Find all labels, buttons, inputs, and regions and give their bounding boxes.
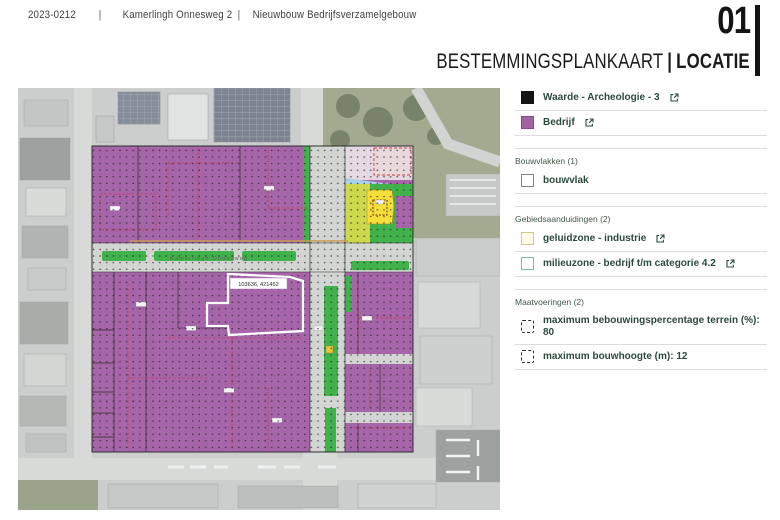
legend-item-label: geluidzone - industrie [543,233,646,245]
legend-item-bedrijf: Bedrijf [515,111,767,136]
legend-item-milieuzone: milieuzone - bedrijf t/m categorie 4.2 [515,252,767,277]
header-separator: | [99,9,102,21]
external-link-icon[interactable] [726,259,735,268]
legend-item-label: maximum bebouwingspercentage terrein (%)… [543,315,767,338]
legend-section-header: Maatvoeringen (2) [515,297,767,307]
legend-item-label: Waarde - Archeologie - 3 [543,92,660,104]
legend-item-label: Bedrijf [543,117,575,129]
legend-divider [515,289,767,290]
title-separator: | [668,50,673,73]
legend-divider [515,148,767,149]
project-name: Nieuwbouw Bedrijfsverzamelgebouw [253,9,417,21]
legend-item-bouwhoogte: maximum bouwhoogte (m): 12 [515,345,767,370]
legend-item-geluidzone: geluidzone - industrie [515,227,767,252]
legend-item-label: maximum bouwhoogte (m): 12 [543,351,687,363]
legend-section-header: Gebiedsaanduidingen (2) [515,214,767,224]
legend-item-label: milieuzone - bedrijf t/m categorie 4.2 [543,258,716,270]
legend-item-bebouwingspercentage: maximum bebouwingspercentage terrein (%)… [515,310,767,345]
page-title-sub: LOCATIE [676,50,750,73]
street-name-label: Kamerlingh Onnesweg [170,256,248,262]
legend-swatch [521,91,534,104]
legend-section-header: Bouwvlakken (1) [515,156,767,166]
legend-swatch [521,320,534,333]
legend-swatch [521,174,534,187]
zoning-map-svg: Kamerlingh Onnesweg 103636, 421452 [18,88,500,510]
page-number: 01 [717,2,750,40]
legend-swatch [521,350,534,363]
page-title: BESTEMMINGSPLANKAART|LOCATIE [437,50,750,74]
document-header: 2023-0212 | Kamerlingh Onnesweg 2 | Nieu… [28,9,416,21]
external-link-icon[interactable] [656,234,665,243]
legend-item-waarde-archeologie: Waarde - Archeologie - 3 [515,86,767,111]
legend-swatch [521,257,534,270]
external-link-icon[interactable] [585,118,594,127]
zoning-map: Kamerlingh Onnesweg 103636, 421452 [18,88,500,510]
legend-swatch [521,116,534,129]
project-number: 2023-0212 [28,9,76,21]
legend-panel: Waarde - Archeologie - 3 Bedrijf Bouwvla… [515,86,767,370]
external-link-icon[interactable] [670,93,679,102]
page-title-main: BESTEMMINGSPLANKAART [437,50,664,73]
header-separator: | [238,9,241,21]
legend-swatch [521,232,534,245]
legend-item-bouwvlak: bouwvlak [515,169,767,194]
title-accent-bar [755,5,760,76]
parcel-coordinate-label: 103636, 421452 [238,282,278,288]
project-address: Kamerlingh Onnesweg 2 [123,9,233,21]
legend-divider [515,206,767,207]
legend-item-label: bouwvlak [543,175,589,187]
